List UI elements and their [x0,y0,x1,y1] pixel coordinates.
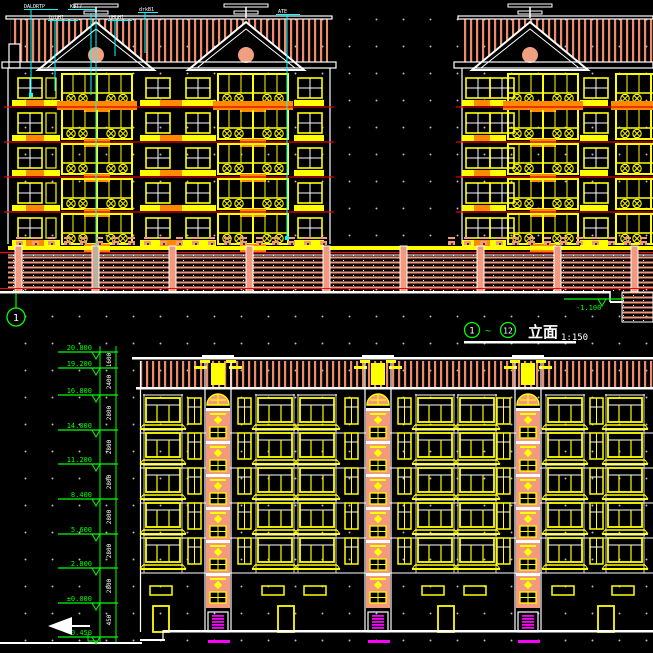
balcony-orange-band [611,101,653,110]
eave-line [136,387,653,390]
vent-row [10,237,332,245]
title-bubble-end: 12 [503,327,513,336]
level-labels: 20.800 19.200 16.800 14.000 11.200 8.400… [67,344,92,637]
dim-value: 2400 [106,374,113,389]
parapet-end [9,44,20,68]
balcony-orange-band [57,101,137,110]
annotation-label: ATE [278,9,287,15]
grid-bubble-number: 1 [13,313,19,324]
ridge-line [458,16,653,19]
annotation-label: drkB1 [139,7,154,13]
level-value: 11.200 [67,456,92,464]
cad-model-space: -1.100 DALDRTP KBT7 brbH1 dHbH1 drkB1 AT… [0,0,653,653]
dim-value: 2800 [106,578,113,593]
annotation-label: dHbH1 [109,15,124,21]
dim-value: 1600 [106,352,113,367]
annotation-label: brbH1 [49,15,64,21]
fence-step-panel [622,292,653,322]
drawing-title: 立面 [528,323,558,341]
level-value: 16.800 [67,387,92,395]
elevation-drawing-canvas: -1.100 DALDRTP KBT7 brbH1 dHbH1 drkB1 AT… [0,0,653,653]
level-value: 8.400 [71,491,92,499]
ground-line [0,291,610,294]
roof [2,4,653,70]
top-elevation: -1.100 DALDRTP KBT7 brbH1 dHbH1 drkB1 AT… [0,4,653,326]
dim-value: 2800 [106,439,113,454]
floor-lines-red [4,107,653,212]
dim-value: 2800 [106,405,113,420]
dimension-values: 1600 2400 2800 2800 2800 2800 2800 2800 … [106,352,113,625]
dim-value: 2800 [106,509,113,524]
level-value: 19.200 [67,360,92,368]
vent-row [440,237,653,245]
annotation-label: KBT7 [70,4,82,10]
balcony-orange-band [503,101,583,110]
title-underline [464,341,576,344]
level-value: ±0.000 [67,595,92,603]
title-range-symbol: ~ [485,326,491,337]
title-bubble-start: 1 [469,327,474,337]
annotation-label: DALDRTP [24,4,45,10]
dim-value: 2800 [106,543,113,558]
bottom-elevation: 20.800 19.200 16.800 14.000 11.200 8.400… [0,344,653,644]
grid-bubble-1: 1 [7,293,25,326]
ground-level-marker: -1.100 [564,299,624,312]
level-value: 5.600 [71,526,92,534]
balcony-orange-band [213,101,293,110]
level-value: -1.100 [576,304,601,312]
title-block: 1 ~ 12 立面 1:150 [464,323,588,344]
dim-value: 2800 [106,474,113,489]
dim-value: 450 [106,614,113,625]
level-value: 14.000 [67,422,92,430]
fence [0,246,653,322]
stair-tower [354,355,402,643]
level-value: 20.800 [67,344,92,352]
facade [4,68,653,252]
level-value: 2.800 [71,560,92,568]
dimension-chain: 20.800 19.200 16.800 14.000 11.200 8.400… [58,344,118,644]
